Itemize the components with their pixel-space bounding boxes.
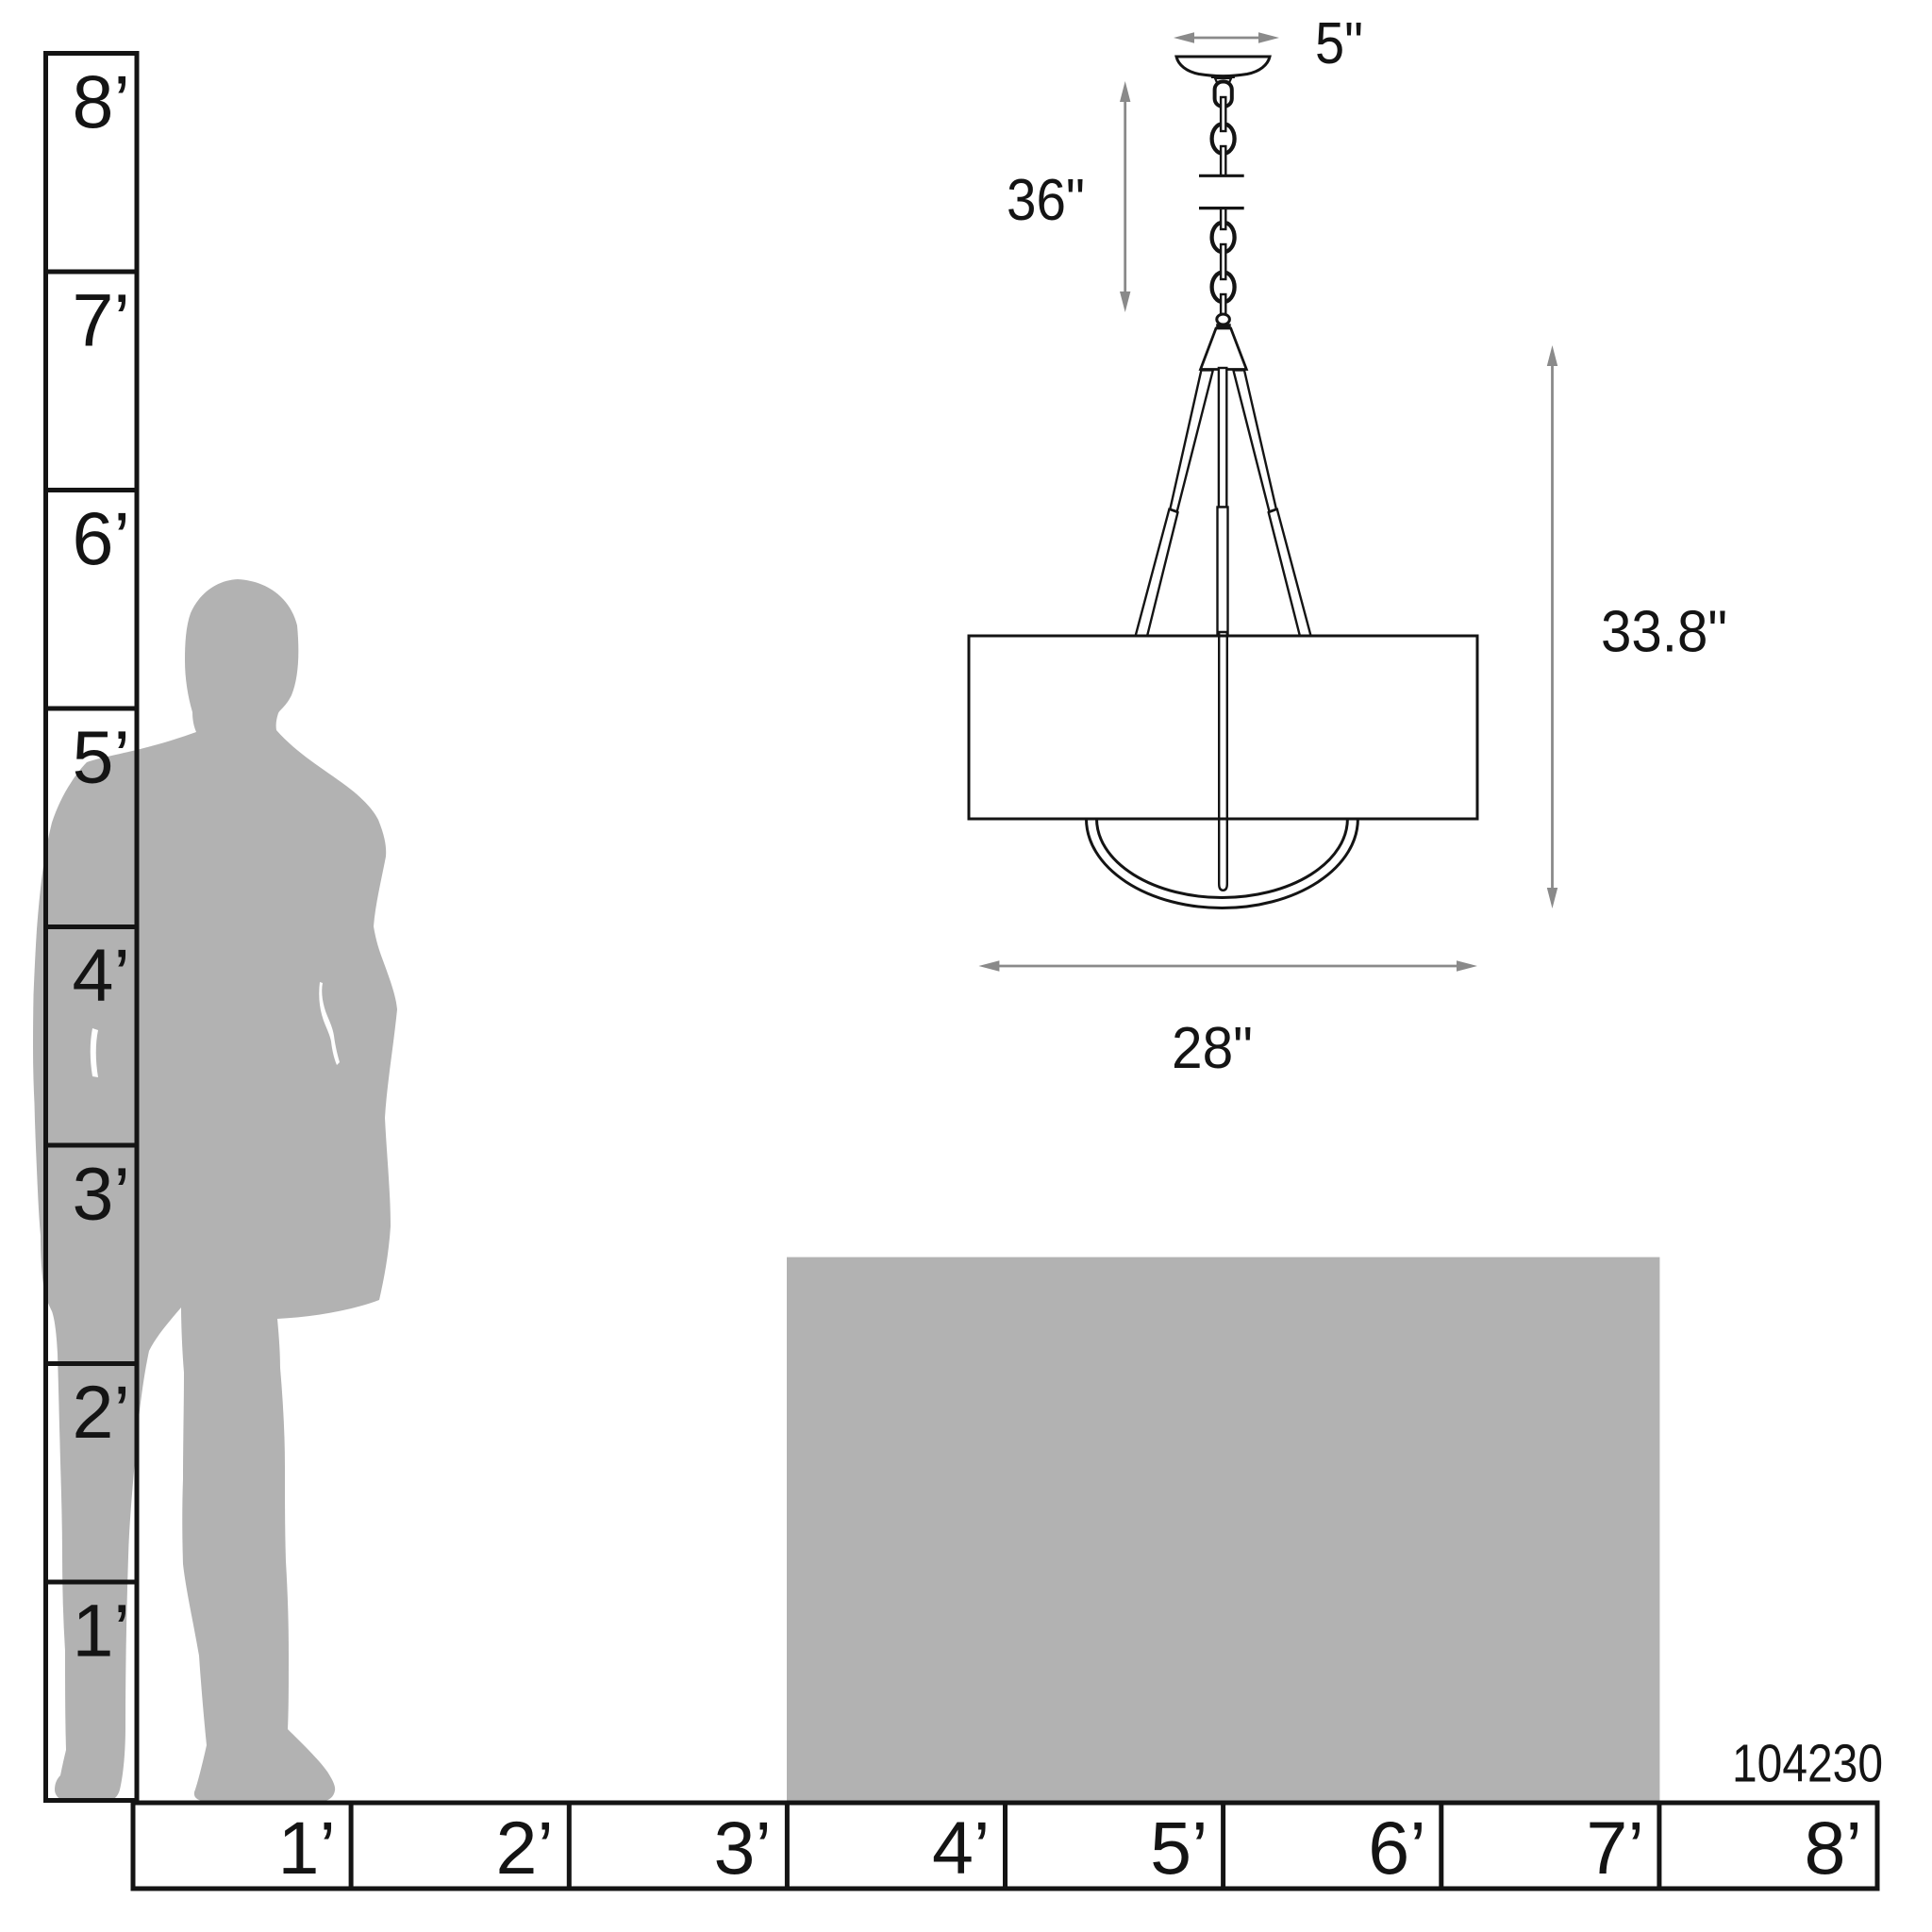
svg-text:4’: 4’ (73, 933, 131, 1017)
svg-text:4’: 4’ (932, 1806, 991, 1890)
svg-text:2’: 2’ (496, 1806, 555, 1890)
svg-text:104230: 104230 (1732, 1734, 1883, 1794)
svg-text:1’: 1’ (278, 1806, 337, 1890)
svg-text:36": 36" (1007, 167, 1085, 233)
svg-text:5’: 5’ (1150, 1806, 1208, 1890)
svg-text:1’: 1’ (73, 1588, 131, 1672)
svg-text:8’: 8’ (1805, 1806, 1863, 1890)
svg-text:6’: 6’ (1368, 1806, 1426, 1890)
svg-text:5": 5" (1315, 10, 1363, 76)
svg-text:7’: 7’ (73, 277, 131, 361)
svg-text:3’: 3’ (73, 1151, 131, 1235)
svg-text:6’: 6’ (73, 496, 131, 580)
svg-text:28": 28" (1172, 1015, 1253, 1081)
svg-text:3’: 3’ (714, 1806, 773, 1890)
svg-text:5’: 5’ (73, 714, 131, 798)
svg-text:33.8": 33.8" (1601, 599, 1727, 665)
svg-text:8’: 8’ (73, 59, 131, 143)
svg-text:7’: 7’ (1586, 1806, 1644, 1890)
svg-text:2’: 2’ (73, 1370, 131, 1454)
